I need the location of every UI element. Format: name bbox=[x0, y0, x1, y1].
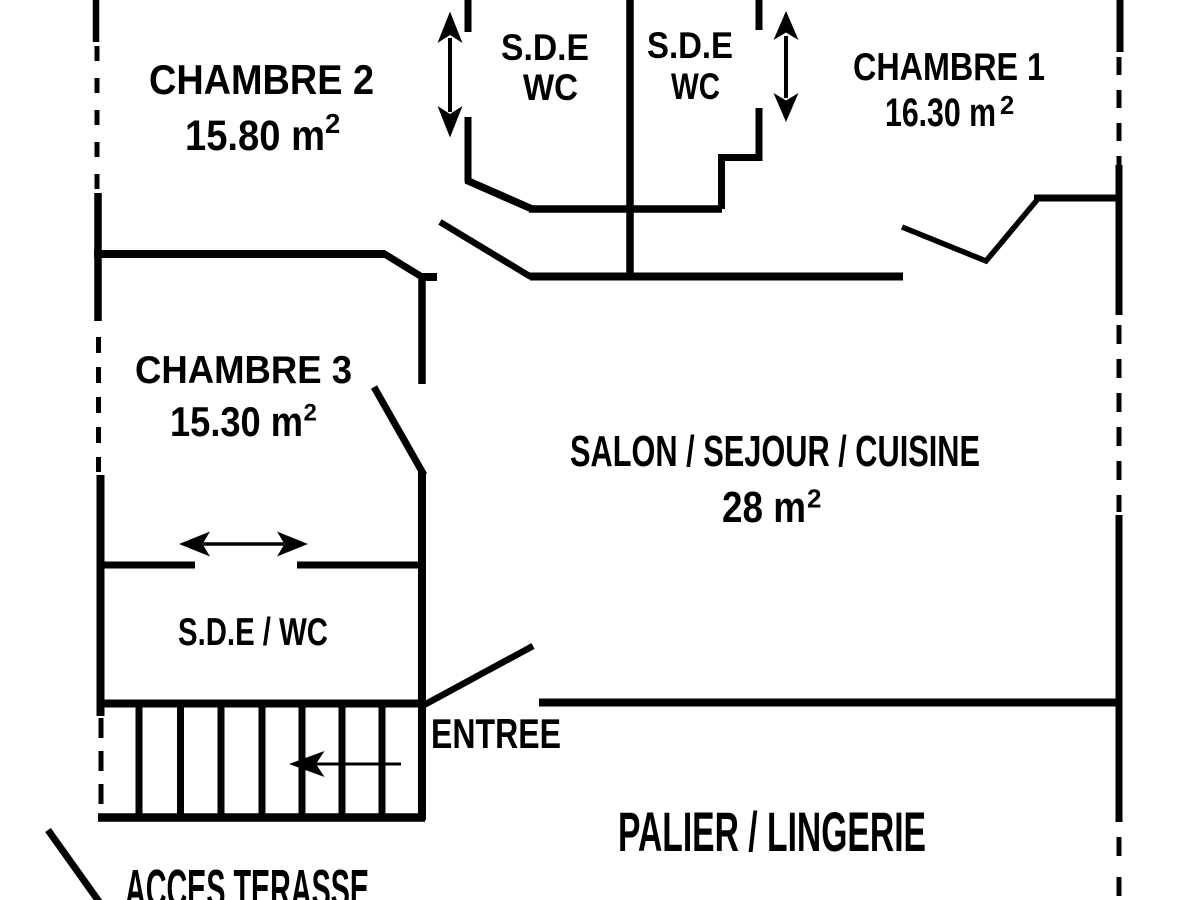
svg-text:16.30 m: 16.30 m bbox=[885, 91, 996, 135]
svg-text:CHAMBRE 2: CHAMBRE 2 bbox=[149, 56, 374, 103]
svg-text:2: 2 bbox=[1000, 92, 1014, 120]
svg-text:ACCES TERASSE: ACCES TERASSE bbox=[125, 859, 369, 900]
svg-text:WC: WC bbox=[523, 67, 578, 108]
svg-text:S.D.E: S.D.E bbox=[501, 27, 589, 68]
svg-text:WC: WC bbox=[671, 66, 720, 107]
svg-text:ENTREE: ENTREE bbox=[431, 710, 561, 757]
svg-text:15.30 m: 15.30 m bbox=[170, 398, 303, 445]
svg-text:2: 2 bbox=[304, 400, 317, 427]
svg-text:28 m: 28 m bbox=[722, 483, 806, 532]
svg-text:2: 2 bbox=[325, 108, 340, 139]
svg-text:PALIER / LINGERIE: PALIER / LINGERIE bbox=[618, 800, 926, 863]
svg-text:15.80 m: 15.80 m bbox=[185, 112, 325, 160]
svg-text:2: 2 bbox=[807, 484, 821, 514]
svg-text:S.D.E / WC: S.D.E / WC bbox=[178, 611, 328, 654]
svg-text:SALON / SEJOUR / CUISINE: SALON / SEJOUR / CUISINE bbox=[570, 427, 980, 476]
svg-text:CHAMBRE 3: CHAMBRE 3 bbox=[135, 349, 352, 392]
svg-text:S.D.E: S.D.E bbox=[647, 25, 733, 66]
svg-text:CHAMBRE 1: CHAMBRE 1 bbox=[853, 46, 1045, 89]
